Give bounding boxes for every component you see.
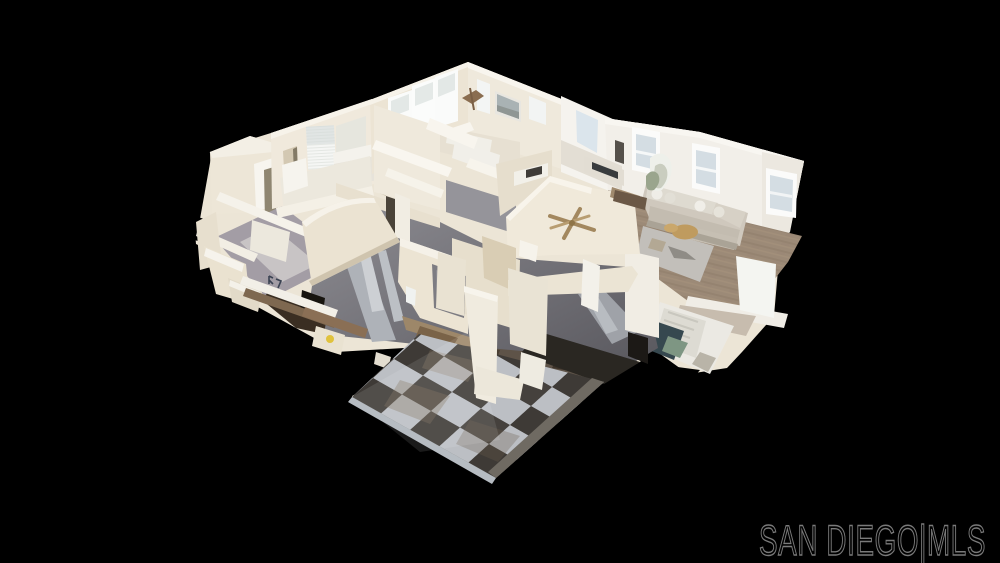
svg-text:SAN DIEGO|MLS: SAN DIEGO|MLS: [759, 517, 986, 563]
